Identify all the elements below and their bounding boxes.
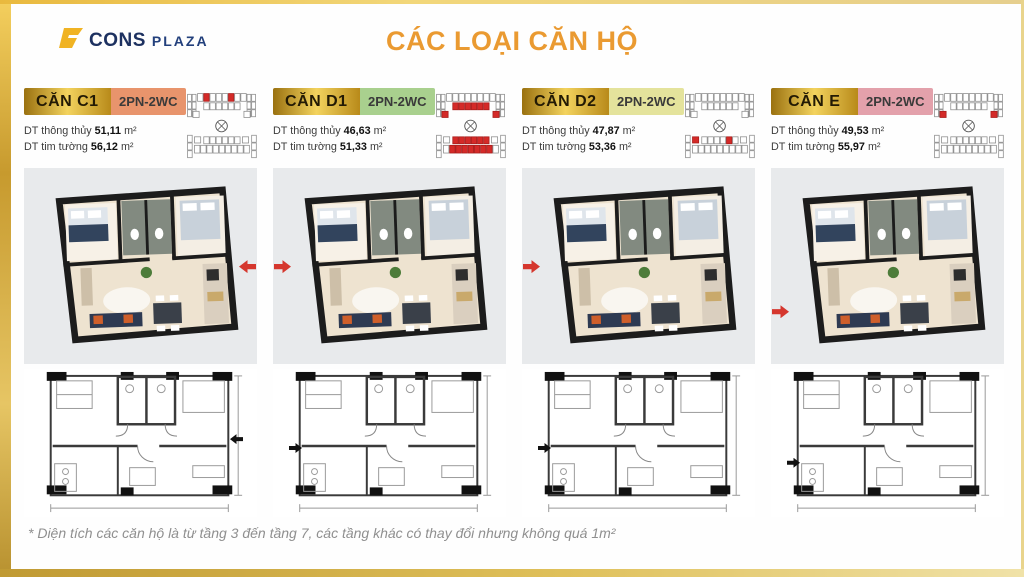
gold-border-top xyxy=(0,0,1024,4)
logo-text-bold: CONS xyxy=(89,30,146,52)
floor-location-minimap xyxy=(435,88,506,164)
floorplan-2d-image xyxy=(24,369,257,517)
logo-text-light: PLAZA xyxy=(152,33,209,49)
area-unit: m² xyxy=(124,125,137,137)
apartment-header: CĂN D2 2PN-2WC DT thông thủy 47,87 m² DT… xyxy=(522,88,755,166)
apartments-row: CĂN C1 2PN-2WC DT thông thủy 51,11 m² DT… xyxy=(24,88,1004,517)
area-gross-value: 53,36 xyxy=(589,141,616,153)
area-net-value: 47,87 xyxy=(593,125,620,137)
apartment-badge: CĂN D2 2PN-2WC xyxy=(522,88,684,115)
area-net-label: DT thông thủy xyxy=(24,125,92,137)
area-gross-label: DT tim tường xyxy=(522,141,586,153)
floorplan-3d xyxy=(522,168,755,364)
floorplan-3d-image xyxy=(778,174,997,358)
apartment-type-label: 2PN-2WC xyxy=(111,88,186,115)
apartment-header: CĂN E 2PN-2WC DT thông thủy 49,53 m² DT … xyxy=(771,88,1004,166)
floorplan-3d-image xyxy=(529,174,748,358)
area-gross-value: 51,33 xyxy=(340,141,367,153)
apartment-badge: CĂN E 2PN-2WC xyxy=(771,88,933,115)
apartment-column: CĂN D1 2PN-2WC DT thông thủy 46,63 m² DT… xyxy=(273,88,506,517)
area-gross-value: 56,12 xyxy=(91,141,118,153)
apartment-type-label: 2PN-2WC xyxy=(360,88,435,115)
area-unit: m² xyxy=(623,125,636,137)
area-net-value: 49,53 xyxy=(842,125,869,137)
floorplan-2d-image xyxy=(522,369,755,517)
b-mark-icon xyxy=(56,26,86,55)
floorplan-3d-image xyxy=(31,174,250,358)
floor-location-minimap xyxy=(684,88,755,164)
gold-border-left xyxy=(0,0,11,577)
area-gross-label: DT tim tường xyxy=(771,141,835,153)
area-net-line: DT thông thủy 49,53 m² xyxy=(771,125,933,137)
apartment-type-label: 2PN-2WC xyxy=(858,88,933,115)
area-gross-label: DT tim tường xyxy=(273,141,337,153)
area-gross-line: DT tim tường 53,36 m² xyxy=(522,141,684,153)
floorplan-2d-image xyxy=(273,369,506,517)
apartment-badge: CĂN C1 2PN-2WC xyxy=(24,88,186,115)
area-unit: m² xyxy=(872,125,885,137)
floorplan-2d xyxy=(24,369,257,517)
apartment-name-label: CĂN E xyxy=(771,88,858,115)
apartment-header: CĂN D1 2PN-2WC DT thông thủy 46,63 m² DT… xyxy=(273,88,506,166)
apartment-column: CĂN C1 2PN-2WC DT thông thủy 51,11 m² DT… xyxy=(24,88,257,517)
area-net-value: 46,63 xyxy=(344,125,371,137)
floorplan-2d xyxy=(273,369,506,517)
apartment-badge: CĂN D1 2PN-2WC xyxy=(273,88,435,115)
area-net-label: DT thông thủy xyxy=(771,125,839,137)
apartment-column: CĂN D2 2PN-2WC DT thông thủy 47,87 m² DT… xyxy=(522,88,755,517)
floorplan-3d xyxy=(771,168,1004,364)
apartment-column: CĂN E 2PN-2WC DT thông thủy 49,53 m² DT … xyxy=(771,88,1004,517)
gold-border-bottom xyxy=(0,569,1024,577)
area-unit: m² xyxy=(121,141,134,153)
area-net-line: DT thông thủy 46,63 m² xyxy=(273,125,435,137)
area-net-line: DT thông thủy 51,11 m² xyxy=(24,125,186,137)
brand-logo: CONS PLAZA xyxy=(56,26,209,55)
floorplan-3d xyxy=(273,168,506,364)
apartment-name-label: CĂN D1 xyxy=(273,88,360,115)
area-net-label: DT thông thủy xyxy=(273,125,341,137)
area-gross-label: DT tim tường xyxy=(24,141,88,153)
apartment-type-label: 2PN-2WC xyxy=(609,88,684,115)
floorplan-3d-image xyxy=(280,174,499,358)
area-gross-line: DT tim tường 55,97 m² xyxy=(771,141,933,153)
footnote: * Diện tích các căn hộ là từ tầng 3 đến … xyxy=(28,525,615,541)
area-unit: m² xyxy=(370,141,383,153)
area-unit: m² xyxy=(868,141,881,153)
apartment-name-label: CĂN D2 xyxy=(522,88,609,115)
floor-location-minimap xyxy=(933,88,1004,164)
area-net-line: DT thông thủy 47,87 m² xyxy=(522,125,684,137)
floorplan-3d xyxy=(24,168,257,364)
slide: CONS PLAZA CÁC LOẠI CĂN HỘ CĂN C1 2PN-2W… xyxy=(0,0,1024,577)
floorplan-2d-image xyxy=(771,369,1004,517)
area-gross-line: DT tim tường 56,12 m² xyxy=(24,141,186,153)
apartment-name-label: CĂN C1 xyxy=(24,88,111,115)
floorplan-2d xyxy=(522,369,755,517)
area-unit: m² xyxy=(619,141,632,153)
floorplan-2d xyxy=(771,369,1004,517)
floor-location-minimap xyxy=(186,88,257,164)
area-gross-value: 55,97 xyxy=(838,141,865,153)
area-net-label: DT thông thủy xyxy=(522,125,590,137)
area-unit: m² xyxy=(374,125,387,137)
apartment-header: CĂN C1 2PN-2WC DT thông thủy 51,11 m² DT… xyxy=(24,88,257,166)
area-net-value: 51,11 xyxy=(95,125,121,137)
area-gross-line: DT tim tường 51,33 m² xyxy=(273,141,435,153)
